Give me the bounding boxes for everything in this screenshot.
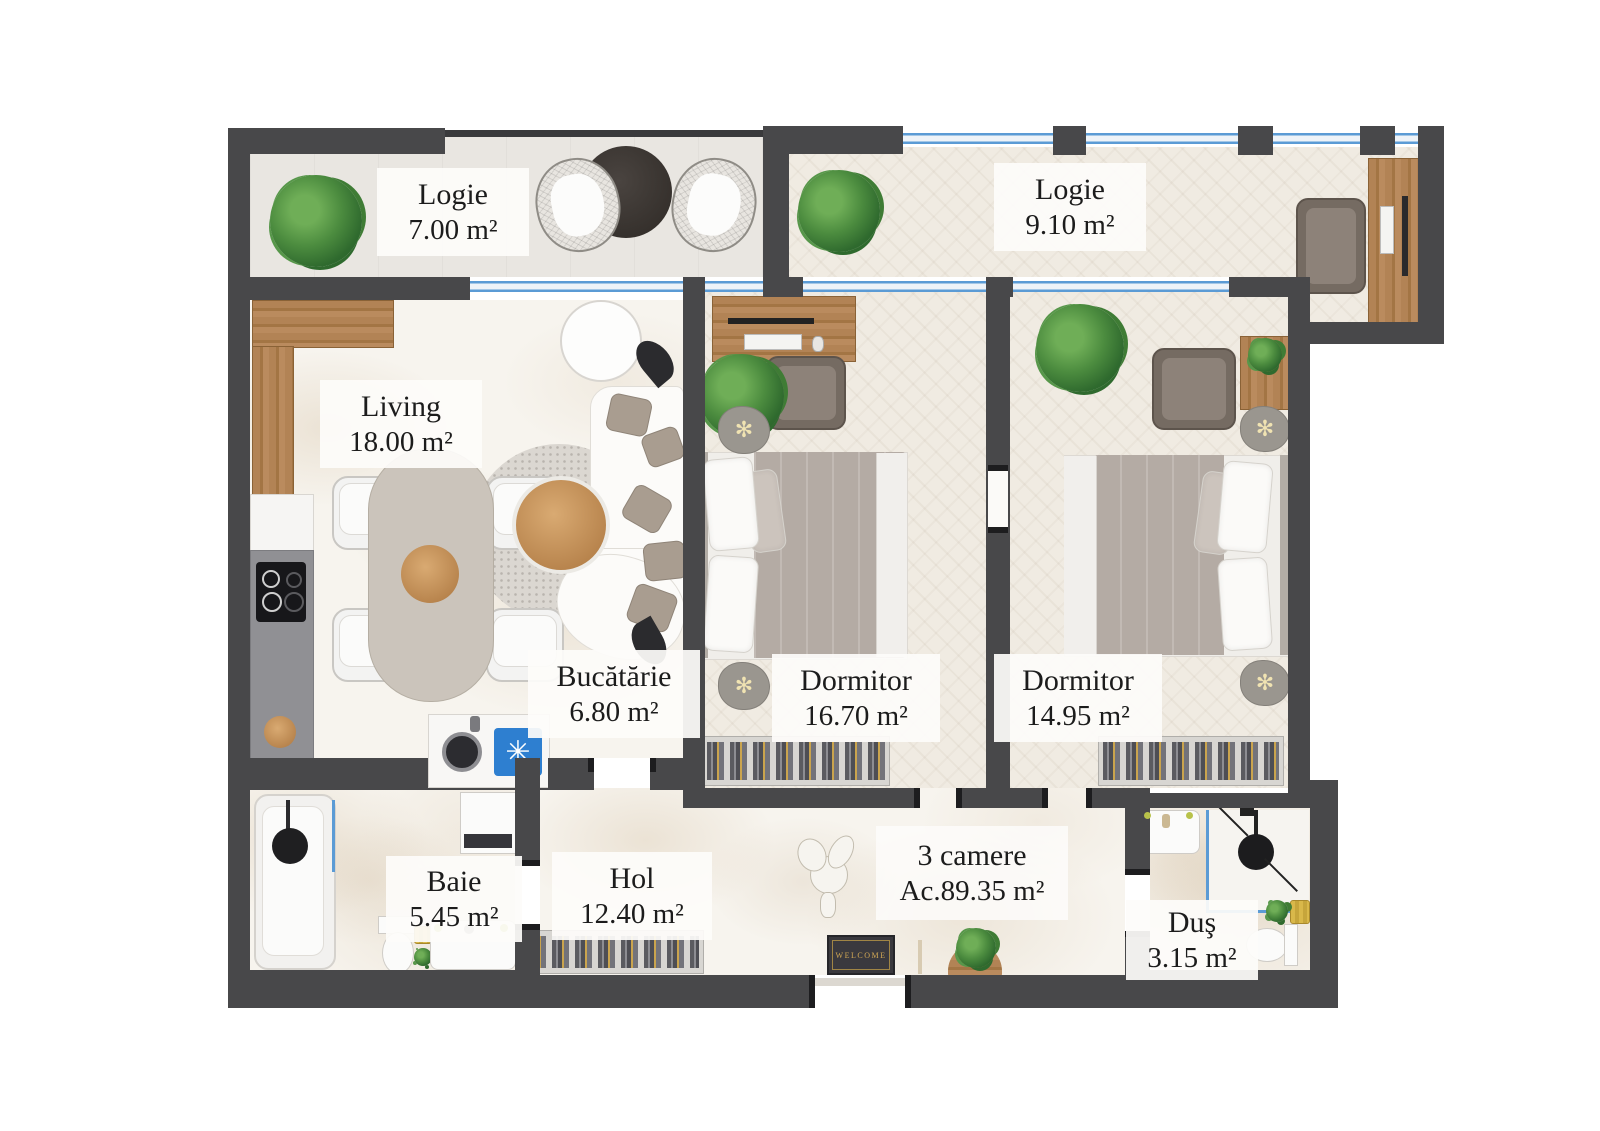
room-area: 7.00 m²: [408, 213, 497, 248]
room-area: 5.45 m²: [409, 900, 498, 935]
window-bedroom-2: [1013, 281, 1229, 292]
wall: [228, 758, 428, 790]
headboard: [1280, 455, 1288, 655]
room-area: 16.70 m²: [804, 699, 908, 734]
room-name: Living: [361, 389, 441, 425]
wall: [540, 975, 815, 1008]
wall: [515, 758, 540, 865]
lamp-glyph: ✻: [735, 418, 753, 443]
wall: [228, 277, 470, 300]
room-area: 18.00 m²: [349, 425, 453, 460]
door-jamb: [1042, 788, 1048, 808]
room-area: 14.95 m²: [1026, 699, 1130, 734]
wall-pillar: [1238, 126, 1273, 155]
kitchen-counter: [250, 494, 314, 552]
entrance-door-jamb: [809, 975, 815, 1008]
nightstand-lamp: ✻: [718, 662, 770, 710]
burner-icon: [284, 592, 304, 612]
door-jamb: [914, 788, 920, 808]
desk: [1368, 158, 1422, 338]
cushion: [642, 540, 688, 582]
room-area: 12.40 m²: [580, 897, 684, 932]
room-label-logie-1: Logie 7.00 m²: [377, 168, 529, 256]
pillow: [1217, 556, 1273, 651]
wall: [1229, 277, 1289, 297]
room-area: 6.80 m²: [569, 695, 658, 730]
lamp-glyph: ✻: [735, 674, 753, 699]
nightstand-lamp: ✻: [718, 406, 770, 454]
room-name: Baie: [427, 864, 482, 900]
door-jamb: [588, 758, 594, 772]
nightstand-lamp: ✻: [1240, 406, 1290, 452]
room-name: Duş: [1168, 905, 1216, 941]
bed-sheet: [876, 453, 907, 657]
wardrobe: [702, 736, 890, 786]
burner-icon: [262, 592, 282, 612]
door-jamb: [956, 788, 962, 808]
room-label-dus: Duş 3.15 m²: [1126, 900, 1258, 980]
window-bedroom-1: [803, 281, 986, 292]
wall: [650, 758, 705, 790]
pillow: [703, 554, 760, 653]
room-label-living: Living 18.00 m²: [320, 380, 482, 468]
plant-icon: [270, 175, 362, 267]
sliding-door-living: [470, 281, 763, 292]
washing-machine-door: [464, 834, 512, 848]
monitor: [728, 318, 814, 324]
entrance-threshold: [815, 978, 905, 986]
welcome-doormat: WELCOME: [827, 935, 895, 975]
apartment-area: Ac.89.35 m²: [900, 874, 1045, 909]
door-jamb: [988, 527, 1008, 533]
room-label-dormitor-2: Dormitor 14.95 m²: [994, 654, 1162, 742]
shower-head-icon: [272, 828, 308, 864]
floor-plan: ✳ ✻ ✻ ✻ ✻: [0, 0, 1600, 1131]
plant-icon: [1248, 338, 1282, 372]
wall: [1418, 126, 1444, 344]
burner-icon: [286, 572, 302, 588]
burner-icon: [262, 570, 280, 588]
lamp-glyph: ✻: [1256, 417, 1274, 442]
room-area: 3.15 m²: [1147, 941, 1236, 976]
wall-pillar: [1360, 126, 1395, 155]
wall: [683, 788, 920, 808]
entrance-door-jamb: [905, 975, 911, 1008]
mouse: [812, 336, 824, 352]
balcony-railing: [445, 130, 768, 137]
door-jamb: [1086, 788, 1092, 808]
room-name: Dormitor: [800, 663, 912, 699]
room-label-dormitor-1: Dormitor 16.70 m²: [772, 654, 940, 742]
doormat-text: WELCOME: [832, 940, 890, 970]
wall: [956, 788, 1010, 808]
wall-pillar: [1053, 126, 1086, 155]
wardrobe: [1098, 736, 1284, 786]
cutting-board: [264, 716, 296, 748]
room-label-hol: Hol 12.40 m²: [552, 852, 712, 940]
side-table: [560, 300, 642, 382]
wall: [1288, 277, 1310, 808]
monitor: [1402, 196, 1408, 276]
soap: [1144, 812, 1151, 819]
door-jamb: [650, 758, 656, 772]
cooktop: [256, 562, 306, 622]
room-label-logie-2: Logie 9.10 m²: [994, 163, 1146, 251]
desk: [712, 296, 856, 362]
statue: [820, 892, 836, 918]
wall: [228, 128, 250, 1008]
wall: [228, 970, 540, 1008]
wall: [1288, 322, 1444, 344]
pillow: [1216, 460, 1274, 554]
keyboard: [744, 334, 802, 350]
armchair: [1152, 348, 1236, 430]
wall: [905, 975, 1125, 1008]
cabinet: [252, 346, 294, 496]
faucet-icon: [470, 716, 480, 732]
kitchen-sink: [442, 732, 482, 772]
room-name: Dormitor: [1022, 663, 1134, 699]
window: [903, 133, 1418, 144]
faucet-icon: [1162, 814, 1170, 828]
plant-icon: [798, 170, 880, 252]
lamp-glyph: ✻: [1256, 671, 1274, 696]
candle-stick: [918, 940, 922, 974]
room-name: Logie: [418, 177, 488, 213]
room-name: Logie: [1035, 172, 1105, 208]
apartment-title: 3 camere: [917, 838, 1026, 874]
bed-sheet: [1064, 456, 1097, 654]
plant-icon: [956, 928, 996, 968]
room-name: Hol: [610, 861, 655, 897]
coffee-table: [512, 476, 610, 574]
plant-icon: [1036, 304, 1124, 392]
toilet-tank: [1284, 924, 1298, 966]
room-name: Bucătărie: [557, 659, 672, 695]
room-area: 9.10 m²: [1025, 208, 1114, 243]
room-label-baie: Baie 5.45 m²: [386, 856, 522, 942]
keyboard: [1380, 206, 1394, 254]
wall: [763, 277, 803, 297]
wall: [1125, 793, 1150, 875]
wall-pocket: [988, 471, 1008, 527]
towel: [1290, 900, 1310, 924]
door-jamb: [988, 465, 1008, 471]
room-label-bucatarie: Bucătărie 6.80 m²: [528, 650, 700, 738]
glass-screen: [332, 800, 335, 872]
nightstand-lamp: ✻: [1240, 660, 1290, 706]
door-jamb: [1125, 869, 1150, 875]
plant-icon: [1266, 900, 1288, 922]
wall: [228, 128, 445, 154]
dining-table-center: [401, 545, 459, 603]
wall: [763, 126, 789, 286]
soap: [1186, 812, 1193, 819]
apartment-summary-label: 3 camere Ac.89.35 m²: [876, 826, 1068, 920]
pillow: [702, 456, 760, 552]
wall: [1150, 793, 1310, 808]
cabinet: [252, 300, 394, 348]
